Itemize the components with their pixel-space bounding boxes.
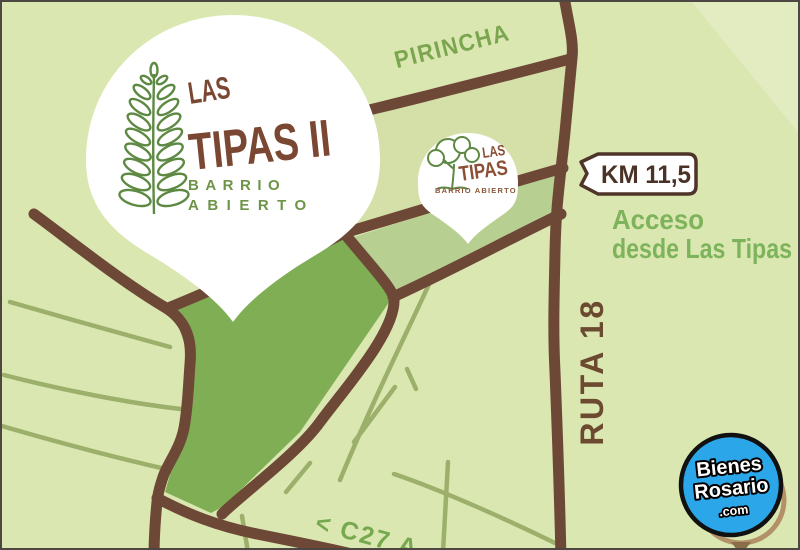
route-label-ruta-18: RUTA 18	[574, 298, 610, 445]
access-note-line1: Acceso	[612, 204, 704, 235]
map-image: PIRINCHA RUTA 18 < C27 A KM 11,5 Acceso …	[0, 0, 800, 550]
secondary-pin-tagline: BARRIO ABIERTO	[435, 186, 517, 195]
km-marker-callout: KM 11,5	[581, 154, 696, 194]
main-pin-name-line1: LAS	[186, 70, 233, 111]
km-marker-label: KM 11,5	[601, 161, 691, 189]
main-pin-tagline-line2: ABIERTO	[188, 197, 315, 214]
main-pin-tagline-line1: BARRIO	[188, 177, 286, 194]
access-note-line2: desde Las Tipas	[612, 233, 792, 264]
